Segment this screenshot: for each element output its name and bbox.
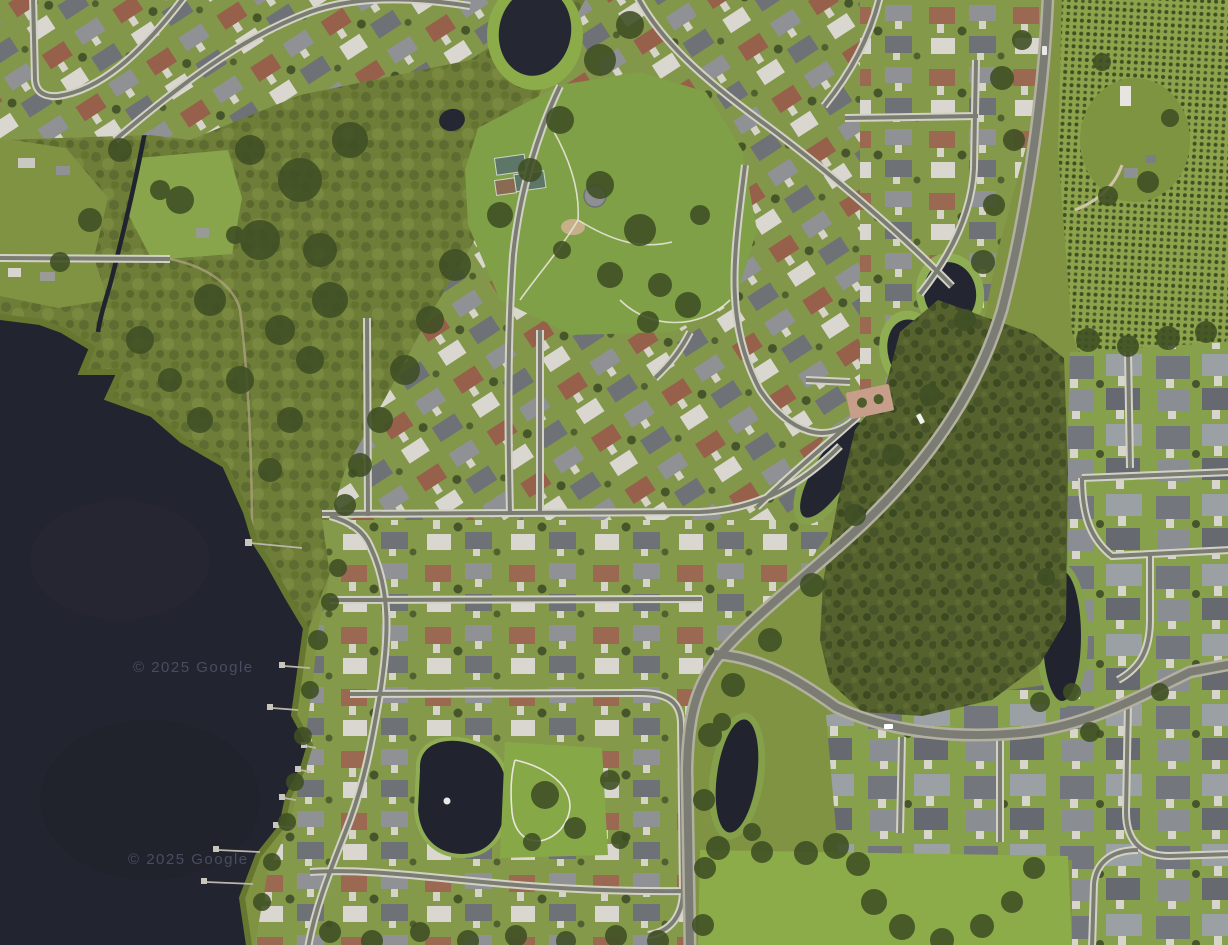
farm-building (1120, 86, 1131, 106)
fountain (444, 798, 451, 805)
attribution-watermark-1: © 2025 Google (133, 659, 254, 676)
rural-house (18, 158, 35, 168)
farm-building (1146, 155, 1156, 163)
vehicle (884, 724, 893, 729)
satellite-map[interactable]: © 2025 Google © 2025 Google (0, 0, 1228, 945)
rural-house (56, 166, 70, 175)
pond-fountain (418, 741, 507, 854)
satellite-map-viewport[interactable]: © 2025 Google © 2025 Google (0, 0, 1228, 945)
shed (196, 228, 209, 238)
rural-house (8, 268, 21, 277)
vehicle (1042, 46, 1047, 55)
lake-shallow (30, 500, 210, 620)
rural-house (40, 272, 55, 281)
farm-building (1124, 168, 1138, 178)
attribution-watermark-2: © 2025 Google (128, 851, 249, 868)
